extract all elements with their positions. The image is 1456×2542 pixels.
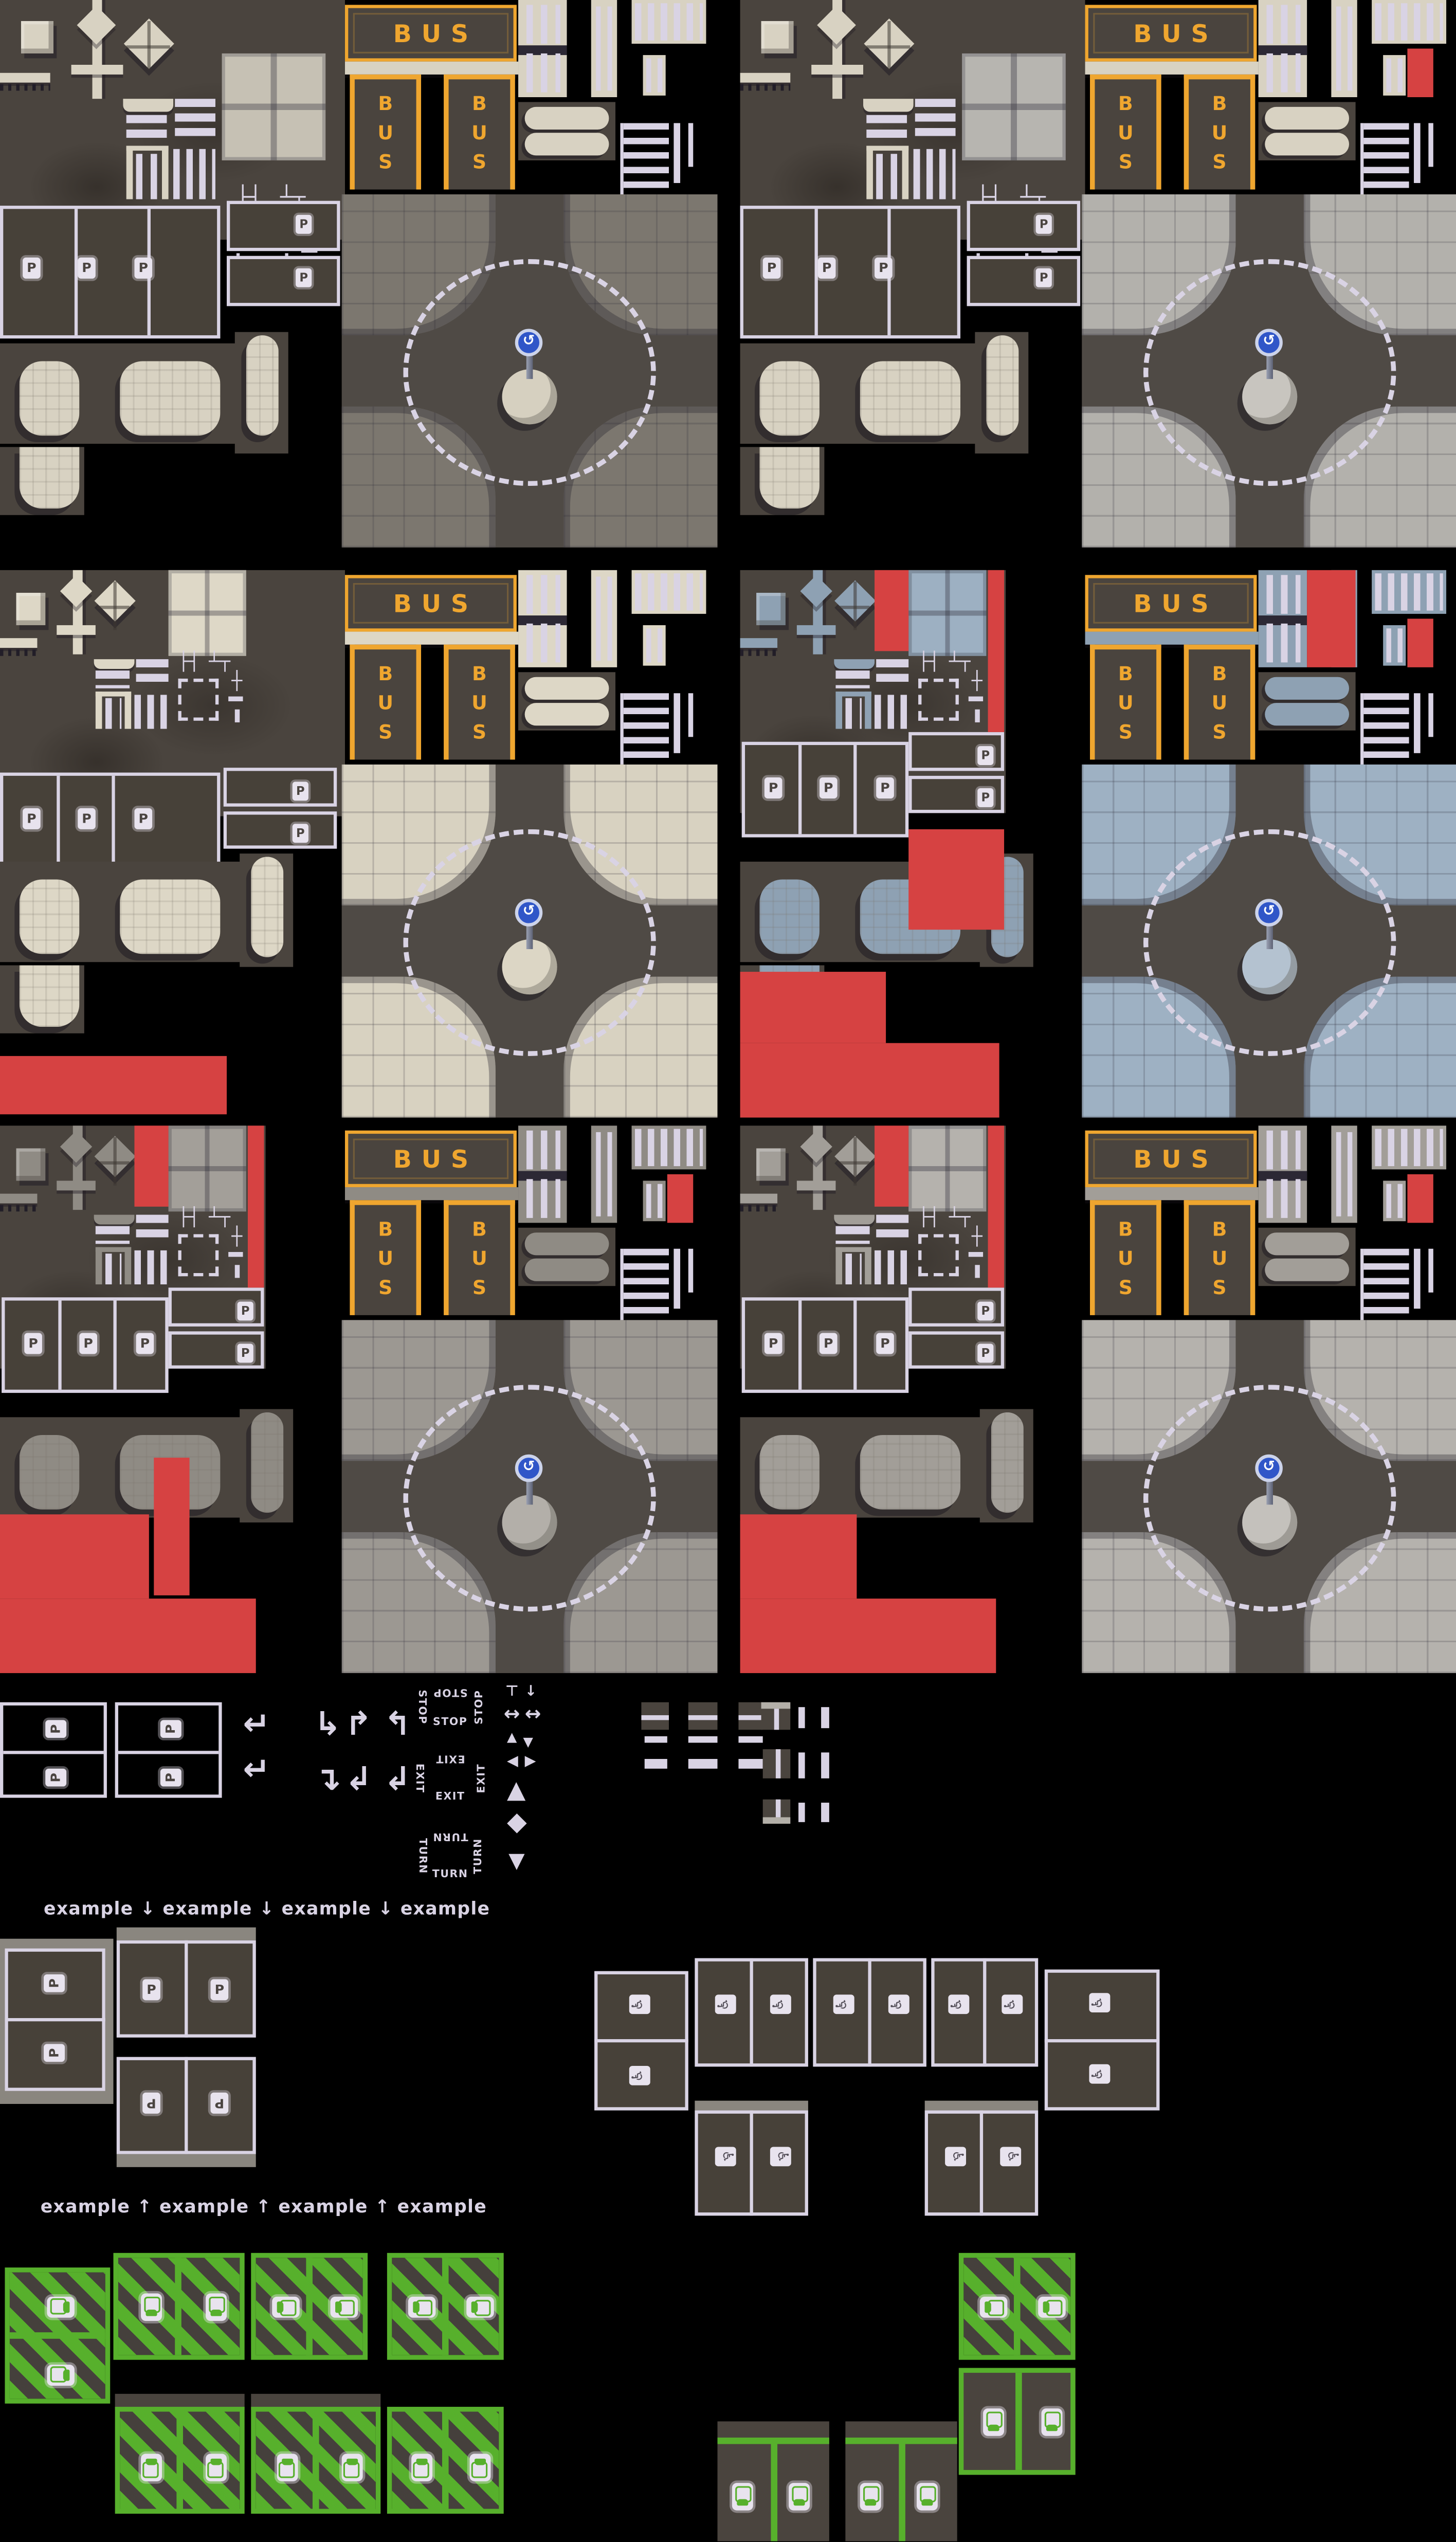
crosswalk-horizontal-bars <box>877 1215 908 1243</box>
bench-planter-tile <box>518 102 615 160</box>
double-crossing-tile <box>1259 1125 1307 1223</box>
bus-station-header-sign: BUS <box>1085 575 1257 631</box>
parking-badge: P <box>977 788 993 807</box>
example-vertical-stalls-down: P P <box>117 2057 256 2154</box>
turn-text: TURN <box>432 1830 468 1843</box>
crossing-bars <box>1266 53 1300 93</box>
crosswalk-vertical-bars <box>135 694 168 729</box>
double-crossing-tile <box>518 0 567 97</box>
ev-striped-vertical-stalls <box>959 2253 1076 2360</box>
crossing-bars <box>646 1184 662 1218</box>
crossing-bars <box>1336 1132 1352 1217</box>
turn-text: TURN <box>471 1838 484 1874</box>
ev-striped-vertical-stalls-down <box>251 2407 380 2514</box>
ev-striped-vertical-stalls <box>251 2253 368 2360</box>
road-line-tile-vertical <box>763 1800 791 1824</box>
ev-line-marked-stalls <box>717 2421 829 2541</box>
short-line-marking <box>969 1252 983 1257</box>
planter-island-wide <box>860 361 960 435</box>
road-line-tile-vertical <box>763 1749 791 1778</box>
roundabout-sign-icon: ↺ <box>1255 1455 1283 1482</box>
crosswalk-horizontal-bars <box>866 115 906 142</box>
small-crossing-tile <box>643 625 666 666</box>
line-strip <box>645 1736 667 1743</box>
ev-charging-badge-icon <box>206 2294 227 2321</box>
lane-line-strip <box>688 693 693 737</box>
crosswalk-horizontal-bars <box>877 659 908 687</box>
ev-striped-horizontal-stalls <box>5 2267 110 2404</box>
striped-crosswalk-tile <box>1372 570 1446 614</box>
planter-tile-partial <box>0 447 84 515</box>
cross-road-marking <box>57 1125 96 1210</box>
example-vertical-stalls-up: P P <box>117 1940 256 2038</box>
bench-pill <box>1264 134 1350 156</box>
ev-charging-section <box>0 2243 1456 2541</box>
crosswalk-horizontal-bars <box>836 670 869 689</box>
side-stall: P <box>169 1331 264 1368</box>
narrow-crossing-tile <box>591 0 617 97</box>
parking-lot-3-stalls: P P P <box>0 206 220 338</box>
stop-text: STOP <box>472 1690 485 1724</box>
bus-station-lintel <box>1085 632 1259 645</box>
stop-text: STOP <box>416 1690 429 1724</box>
parking-badge: P <box>134 808 152 829</box>
roundabout-sign-icon: ↺ <box>515 1455 543 1482</box>
triangle-down-large-icon: ▼ <box>508 1851 525 1873</box>
planter-tile-vertical <box>240 854 293 967</box>
red-placeholder-tile <box>0 1599 256 1673</box>
turn-arrow-icon: ↴ <box>314 1762 341 1794</box>
bus-station-header-sign: BUS <box>1085 1131 1257 1187</box>
crosswalk-stripes <box>1375 1129 1443 1166</box>
small-crossing-tile <box>1383 1181 1406 1221</box>
ev-charging-badge-icon <box>272 2297 300 2318</box>
lane-line-strip <box>1428 123 1433 167</box>
line-strip <box>688 1759 718 1769</box>
planter-tile-vertical <box>975 332 1028 453</box>
line-strip <box>798 1707 805 1728</box>
exit-text: EXIT <box>474 1763 487 1792</box>
planter-tile-partial <box>0 965 84 1033</box>
crosswalk-stripes <box>1375 574 1443 610</box>
diamond-line-h <box>837 1161 869 1165</box>
ev-charging-badge-icon <box>860 2483 881 2511</box>
lane-tee-marker-icon: ┴┬ <box>949 651 971 672</box>
wheelchair-badge-icon: ♿ <box>770 2147 791 2166</box>
turn-arrow-icon: ↲ <box>384 1762 411 1794</box>
ev-charging-badge-icon <box>466 2297 494 2318</box>
shelter-bars <box>845 1254 862 1284</box>
parking-badge-rotated: P <box>44 2044 65 2062</box>
lane-line-strip <box>674 123 680 183</box>
crosswalk-stripes <box>634 4 703 40</box>
ev-charging-badge-icon <box>277 2454 298 2481</box>
lane-line-strip <box>1414 123 1421 183</box>
crossing-bars <box>596 1132 612 1217</box>
red-placeholder-tile <box>134 1125 168 1207</box>
side-stall: P <box>908 776 1004 813</box>
crossing-bars <box>1387 1184 1403 1218</box>
roundabout-sign-icon: ↺ <box>1255 899 1283 927</box>
example-up-caption: example ↑ example ↑ example ↑ example <box>41 2196 487 2218</box>
curb-cap <box>94 1215 134 1224</box>
planter-island-wide <box>860 1435 960 1510</box>
diamond-road-marking <box>834 1135 873 1195</box>
parking-badge-rotated: P <box>160 1769 181 1787</box>
lane-line-strip <box>1428 1249 1433 1293</box>
crosswalk-stripes <box>1375 4 1443 40</box>
parking-lot-3-stalls: P P P <box>740 206 960 338</box>
narrow-crossing-tile <box>1331 0 1357 97</box>
triangle-right-icon: ▶ <box>525 1756 536 1770</box>
bus-lane-left: BUS <box>1090 1200 1161 1315</box>
cross-horizontal-bar <box>797 625 836 634</box>
stall-outline-overlay: P P <box>115 1702 222 1798</box>
ev-striped-vertical-stalls <box>114 2253 245 2360</box>
bench-pill <box>1264 1232 1350 1255</box>
shelter-bars <box>135 154 159 199</box>
planter-island <box>759 361 820 435</box>
bus-lane-label: BUS <box>1114 1218 1137 1305</box>
bus-lane-label: BUS <box>374 93 397 180</box>
bus-shelter-crossing <box>96 691 131 729</box>
ev-charging-badge-icon <box>206 2454 227 2481</box>
stall-divider <box>798 1301 802 1390</box>
planter-tile-row <box>740 343 984 444</box>
shelter-bars <box>105 699 122 729</box>
lane-cross-marker-icon: ┼ <box>972 1226 982 1247</box>
cross-horizontal-bar <box>811 64 863 74</box>
bus-lane-label: BUS <box>1114 662 1137 750</box>
red-placeholder-tile <box>1407 49 1433 98</box>
planter-tile-vertical <box>980 1409 1033 1523</box>
parking-badge: P <box>293 824 308 843</box>
bus-station-header-sign: BUS <box>1085 5 1257 61</box>
red-placeholder-tile <box>248 1125 264 1287</box>
parking-lot-3-stalls: P P P <box>2 1297 168 1393</box>
turn-marking-tile: TURN TURN TURN TURN <box>414 1830 486 1881</box>
crossing-bars <box>1266 1131 1300 1170</box>
marker-overlay-section: P P P P ↵ ↵ ↳ ↱ ↰ ↴ ↲ ↲ STOP STOP STOP S… <box>0 1684 1456 1895</box>
cross-road-marking <box>797 1125 836 1210</box>
wheelchair-badge-icon: ♿ <box>629 2066 650 2085</box>
ev-charging-badge-icon <box>141 2294 162 2321</box>
planter-island-half <box>20 447 80 509</box>
line-strip <box>821 1803 829 1822</box>
lane-end-marker-icon: ├┤ <box>178 1207 200 1228</box>
stop-text: STOP <box>433 1715 467 1728</box>
line-strip <box>821 1752 829 1778</box>
bus-station-lintel <box>345 632 518 645</box>
planter-tile-row <box>0 343 243 444</box>
curb-cap <box>123 99 173 112</box>
turn-arrow-icon: ↵ <box>243 1707 270 1739</box>
turn-arrow-icon: ↱ <box>345 1707 372 1739</box>
parking-badge: P <box>79 1333 97 1354</box>
concrete-sidewalk-2x2 <box>962 53 1066 160</box>
bench-planter-tile <box>1259 102 1356 160</box>
crosswalk-horizontal-bars <box>176 99 215 139</box>
parking-badge-rotated: P <box>45 1720 66 1738</box>
planter-island-half <box>20 965 80 1027</box>
lane-tee-marker-icon: ┴┬ <box>209 651 230 672</box>
utility-pad-tile <box>21 21 53 53</box>
stall-outline-divider <box>3 1750 103 1753</box>
crosswalk-tile-group <box>123 99 215 199</box>
side-stall: P <box>908 732 1004 771</box>
accessible-horizontal-stalls: ♿ ♿ <box>1045 1970 1160 2111</box>
wheelchair-badge-icon: ♿ <box>1089 1993 1110 2012</box>
parking-badge: P <box>820 777 838 798</box>
bus-shelter-crossing <box>836 691 871 729</box>
tile-block-dark: ├┤ ┴┬ ┼ P P P P P BUS BUS BUS <box>0 0 717 551</box>
side-stall: P <box>227 256 340 306</box>
parking-badge: P <box>78 258 96 279</box>
curb-tick-marks <box>0 84 50 91</box>
planter-tile-row <box>0 862 246 962</box>
bus-station-header-sign: BUS <box>345 575 517 631</box>
ev-charging-badge-icon <box>331 2297 358 2318</box>
utility-pad-tile <box>16 1148 46 1181</box>
red-placeholder-tile <box>988 1125 1005 1287</box>
bus-station-lintel <box>1085 1187 1259 1200</box>
triangle-up-icon: ▲ <box>507 1731 517 1744</box>
accessible-vertical-stalls: ♿ ♿ <box>931 1958 1038 2066</box>
ladder-crosswalk-tile <box>1360 1249 1409 1323</box>
diamond-road-marking <box>94 580 133 640</box>
accessible-vertical-stalls-down: ♿ ♿ <box>695 2111 808 2216</box>
cross-horizontal-bar <box>797 1181 836 1190</box>
double-arrow-icon: ↔ <box>504 1704 520 1723</box>
crossing-bars <box>1266 5 1300 44</box>
crosswalk-horizontal-bars <box>96 1226 129 1245</box>
parking-badge: P <box>238 1343 253 1363</box>
parking-side-stalls: P P <box>908 732 1004 813</box>
bus-lane-left: BUS <box>350 75 421 190</box>
bus-station-lintel <box>1085 62 1259 75</box>
crosswalk-horizontal-bars <box>96 670 129 689</box>
exit-text: EXIT <box>435 1752 465 1765</box>
turn-text: TURN <box>432 1867 468 1880</box>
ladder-crosswalk-tile <box>620 693 669 768</box>
triangle-left-icon: ◀ <box>507 1756 518 1770</box>
wheelchair-badge-icon: ♿ <box>1002 1994 1023 2014</box>
planter-island-vertical <box>246 335 279 435</box>
dashed-box-marking <box>178 679 219 721</box>
cross-center-star <box>61 1131 93 1163</box>
crosswalk-vertical-bars <box>875 1249 908 1284</box>
cross-road-marking <box>797 570 836 655</box>
ev-charging-badge-icon <box>411 2454 432 2481</box>
ev-striped-vertical-stalls-down <box>115 2407 245 2514</box>
bus-shelter-crossing <box>126 145 169 199</box>
narrow-crossing-tile <box>591 570 617 667</box>
planter-island-wide <box>120 880 220 954</box>
red-placeholder-tile <box>875 570 908 651</box>
bus-shelter-crossing <box>96 1247 131 1284</box>
crosswalk-tile-group <box>834 1215 908 1284</box>
dashed-box-marking <box>918 679 959 721</box>
diamond-line-h <box>97 606 130 609</box>
double-crossing-tile <box>518 570 567 667</box>
crossing-bars <box>525 53 559 93</box>
wheelchair-badge-icon: ♿ <box>833 1994 854 2014</box>
red-placeholder-tile <box>740 1043 999 1118</box>
planter-island-vertical <box>986 335 1018 435</box>
red-placeholder-tile <box>667 1174 693 1223</box>
concrete-sidewalk-2x2 <box>908 570 986 656</box>
planter-island-half <box>759 447 820 509</box>
diamond-road-marking <box>834 580 873 640</box>
utility-pad-tile <box>761 21 794 53</box>
wheelchair-badge-icon: ♿ <box>888 1994 909 2014</box>
diamond-marking-icon: ◆ <box>507 1809 527 1835</box>
parking-badge: P <box>296 215 312 234</box>
crossing-bars <box>646 58 662 92</box>
cross-horizontal-bar <box>57 625 96 634</box>
bench-pill <box>524 704 609 726</box>
lane-tee-marker-icon: ┴┬ <box>209 1207 230 1228</box>
tile-block-lightgray: ├┤ ┴┬ ┼ P P P P P BUS BUS BUS <box>740 1125 1456 1676</box>
red-placeholder-tile <box>1407 1174 1433 1223</box>
crosswalk-vertical-bars <box>174 149 215 199</box>
line-strip <box>645 1759 667 1769</box>
bus-lane-right: BUS <box>1184 1200 1255 1315</box>
ev-charging-badge-icon <box>789 2483 810 2511</box>
bus-station-lintel <box>345 1187 518 1200</box>
crosswalk-tile-group <box>863 99 956 199</box>
roundabout-tile: ↺ <box>1082 194 1456 548</box>
curb-tick-marks <box>740 1205 777 1212</box>
wheelchair-badge-icon: ♿ <box>1000 2147 1021 2166</box>
road-line-tile <box>738 1702 762 1730</box>
bus-lane-left: BUS <box>1090 75 1161 190</box>
crossing-bars <box>596 6 612 91</box>
lane-cross-marker-icon: ┼ <box>972 670 982 692</box>
shelter-bars <box>876 154 899 199</box>
parking-badge-rotated: P <box>160 1720 181 1738</box>
line-strip <box>738 1759 762 1769</box>
lane-cross-marker-icon: ┼ <box>231 670 242 692</box>
accessible-vertical-stalls-down: ♿ ♿ <box>925 2111 1039 2216</box>
ev-charging-badge-icon <box>141 2454 162 2481</box>
bench-pill <box>524 107 609 129</box>
concrete-sidewalk-2x2 <box>169 1125 246 1211</box>
bench-planter-tile <box>518 1228 615 1286</box>
curb-strip-tile <box>0 73 50 83</box>
striped-crosswalk-tile <box>632 570 706 614</box>
crossing-bars <box>525 5 559 44</box>
bench-pill <box>1264 107 1350 129</box>
stop-marking-tile: STOP STOP STOP STOP <box>414 1686 486 1728</box>
ev-charging-badge-icon <box>470 2454 491 2481</box>
stall-divider <box>114 1301 117 1390</box>
turn-arrow-icon: ↵ <box>243 1752 270 1785</box>
roundabout-tile: ↺ <box>1082 765 1456 1118</box>
parking-lot-3-stalls: P P P <box>742 1297 908 1393</box>
road-line-tile <box>688 1702 718 1730</box>
planter-island-wide <box>120 361 220 435</box>
bus-lane-left: BUS <box>350 1200 421 1315</box>
accessible-vertical-stalls: ♿ ♿ <box>813 1958 926 2066</box>
side-stall: P <box>227 201 340 251</box>
parking-badge: P <box>78 808 96 829</box>
side-stall: P <box>908 1331 1004 1368</box>
ladder-crosswalk-tile <box>620 123 669 197</box>
bus-shelter-crossing <box>836 1247 871 1284</box>
short-line-marking-vertical <box>235 710 240 722</box>
short-line-marking <box>969 697 983 701</box>
concrete-sidewalk-2x2 <box>169 570 246 656</box>
crosswalk-horizontal-bars <box>136 659 168 687</box>
crossing-bars <box>525 1131 559 1170</box>
bench-planter-tile <box>518 672 615 730</box>
wheelchair-badge-icon: ♿ <box>715 1994 736 2014</box>
roundabout-sign-icon: ↺ <box>1255 329 1283 356</box>
crosswalk-stripes <box>634 574 703 610</box>
small-crossing-tile <box>643 55 666 96</box>
bench-pill <box>524 1259 609 1281</box>
curb-cap <box>863 99 913 112</box>
bus-lane-right: BUS <box>444 75 515 190</box>
stall-outline-overlay: P P <box>0 1702 107 1798</box>
cross-road-marking <box>71 0 123 99</box>
ev-charging-badge-icon <box>408 2297 436 2318</box>
narrow-crossing-tile <box>1331 1125 1357 1223</box>
bus-lane-label: BUS <box>1208 93 1231 180</box>
red-placeholder-tile <box>875 1125 908 1207</box>
curb-strip-tile <box>740 73 791 83</box>
stall-divider <box>853 745 857 834</box>
parking-badge: P <box>977 1343 993 1363</box>
bench-planter-tile <box>1259 1228 1356 1286</box>
tile-block-gray: ├┤ ┴┬ ┼ P P P P P BUS BUS BUS <box>0 1125 717 1676</box>
parking-badge: P <box>763 258 781 279</box>
diamond-road-marking <box>123 20 173 80</box>
double-crossing-tile <box>1259 0 1307 97</box>
crossing-bars <box>1266 575 1300 614</box>
lane-line-strip <box>688 1249 693 1293</box>
crosswalk-vertical-bars <box>875 694 908 729</box>
bench-pill <box>524 1232 609 1255</box>
crossing-bars <box>525 1179 559 1218</box>
ev-charging-badge-icon <box>983 2408 1004 2436</box>
lane-cross-marker-icon: ┼ <box>231 1226 242 1247</box>
ev-charging-badge-icon <box>47 2365 75 2386</box>
crossing-bars <box>525 624 559 663</box>
turn-arrow-icon: ↰ <box>384 1707 411 1739</box>
lane-marker-glyph-tiles: ├┤ ┴┬ ┼ <box>918 1207 985 1280</box>
bus-lane-label: BUS <box>1208 1218 1231 1305</box>
parking-badge: P <box>23 258 41 279</box>
road-line-tile <box>641 1702 669 1730</box>
ev-charging-badge-icon <box>1042 2408 1063 2436</box>
lane-line-strip <box>674 1249 680 1309</box>
double-crossing-tile <box>518 1125 567 1223</box>
concrete-sidewalk-2x2 <box>222 53 326 160</box>
lane-end-marker-icon: ├┤ <box>918 1207 940 1228</box>
parking-badge: P <box>876 777 894 798</box>
side-stall: P <box>967 256 1081 306</box>
exit-marking-tile: EXIT EXIT EXIT EXIT <box>414 1752 486 1803</box>
crosswalk-horizontal-bars <box>916 99 955 139</box>
crossing-bars <box>525 575 559 614</box>
parking-badge: P <box>765 1333 782 1354</box>
bus-lane-label: BUS <box>468 93 490 180</box>
parking-badge: P <box>977 746 993 765</box>
stall-outline-divider <box>118 1750 219 1753</box>
lane-line-strip <box>1414 693 1421 753</box>
